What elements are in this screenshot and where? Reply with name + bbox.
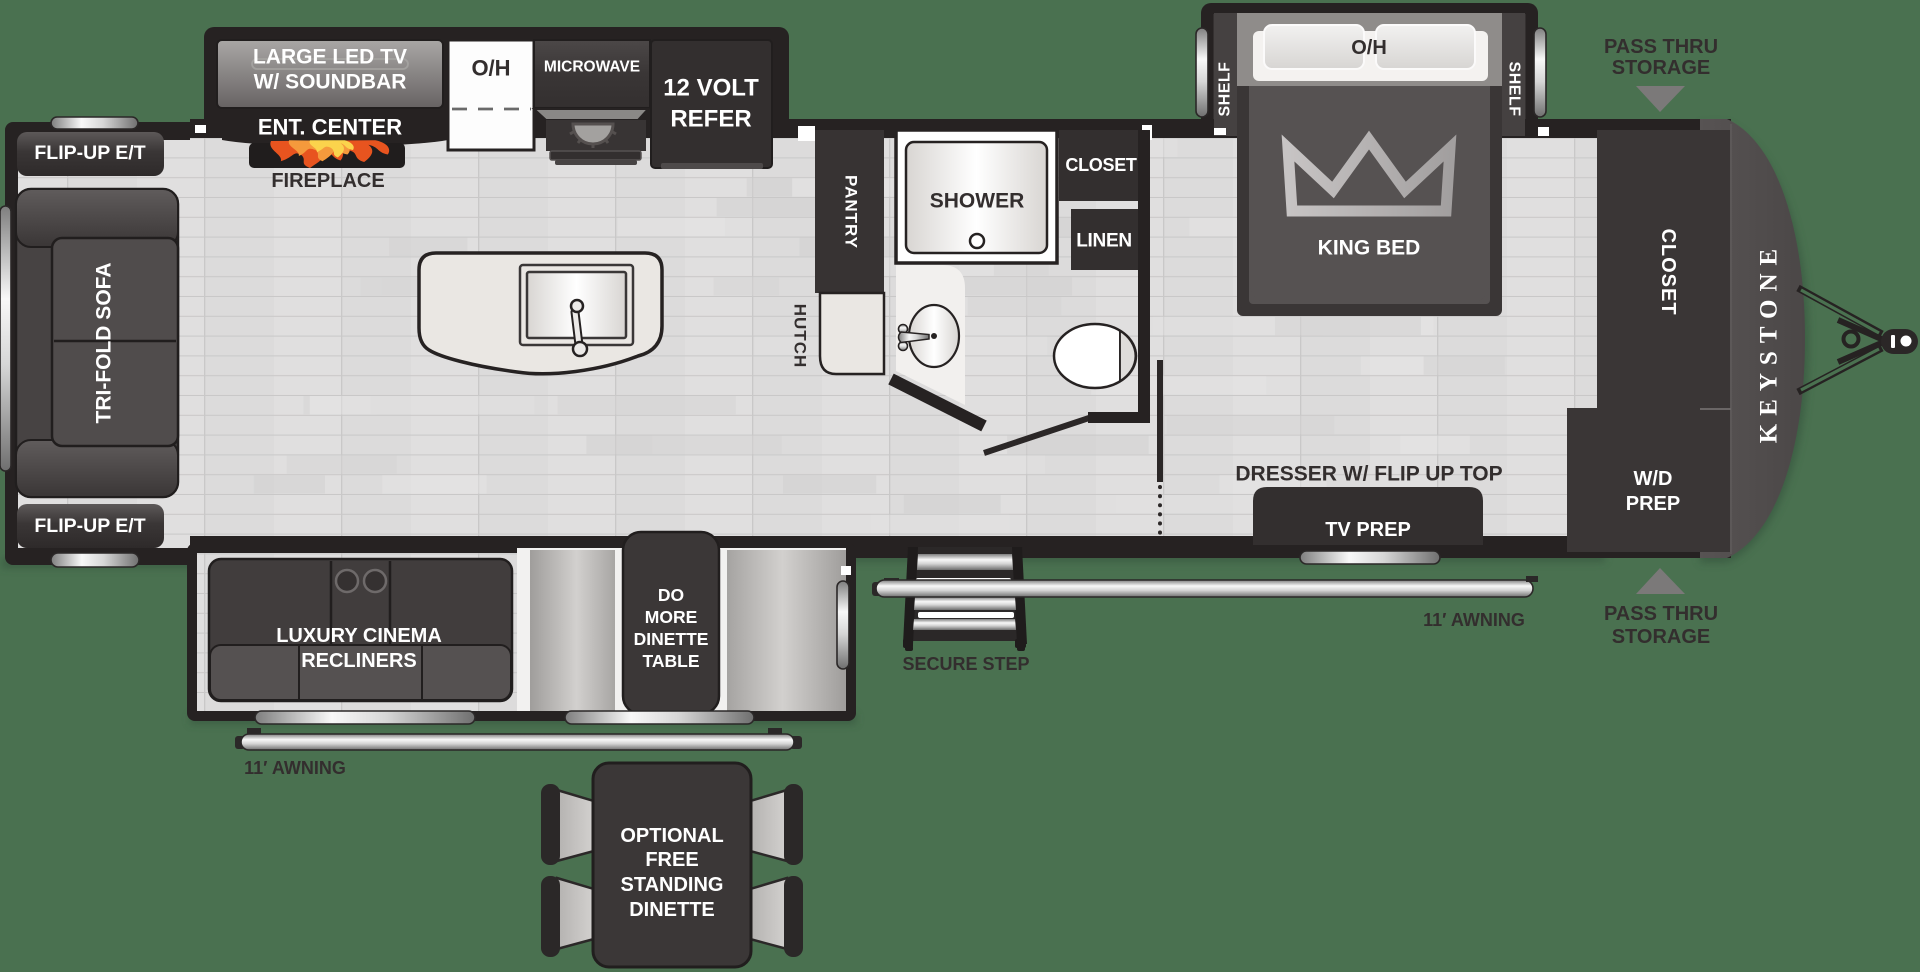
- svg-text:REFER: REFER: [670, 106, 751, 133]
- svg-text:O/H: O/H: [471, 56, 510, 81]
- svg-text:PASS THRU: PASS THRU: [1604, 603, 1718, 625]
- svg-text:FLIP-UP E/T: FLIP-UP E/T: [34, 515, 145, 537]
- svg-text:PANTRY: PANTRY: [842, 175, 861, 249]
- svg-text:FLIP-UP E/T: FLIP-UP E/T: [34, 142, 145, 164]
- svg-text:CLOSET: CLOSET: [1065, 155, 1137, 175]
- svg-text:KING BED: KING BED: [1318, 237, 1421, 260]
- svg-text:MORE: MORE: [645, 607, 698, 627]
- svg-text:W/ SOUNDBAR: W/ SOUNDBAR: [254, 71, 407, 94]
- svg-text:DINETTE: DINETTE: [629, 899, 715, 921]
- svg-text:CLOSET: CLOSET: [1657, 228, 1679, 315]
- svg-text:SHOWER: SHOWER: [930, 190, 1025, 213]
- svg-text:DRESSER W/ FLIP UP TOP: DRESSER W/ FLIP UP TOP: [1235, 463, 1502, 486]
- svg-text:SECURE STEP: SECURE STEP: [902, 654, 1029, 674]
- svg-text:TABLE: TABLE: [642, 651, 699, 671]
- svg-text:PREP: PREP: [1626, 493, 1680, 515]
- svg-text:TV PREP: TV PREP: [1325, 519, 1411, 541]
- svg-text:DINETTE: DINETTE: [634, 629, 709, 649]
- svg-text:MICROWAVE: MICROWAVE: [544, 59, 640, 76]
- svg-text:STORAGE: STORAGE: [1612, 57, 1711, 79]
- svg-text:LARGE LED TV: LARGE LED TV: [253, 46, 407, 69]
- svg-text:LUXURY CINEMA: LUXURY CINEMA: [276, 625, 442, 647]
- svg-text:FREE: FREE: [645, 849, 698, 871]
- svg-text:11′ AWNING: 11′ AWNING: [244, 758, 346, 778]
- svg-text:11′ AWNING: 11′ AWNING: [1423, 610, 1525, 630]
- svg-text:O/H: O/H: [1351, 37, 1387, 59]
- svg-text:12 VOLT: 12 VOLT: [663, 75, 759, 102]
- svg-text:OPTIONAL: OPTIONAL: [620, 825, 723, 847]
- svg-text:FIREPLACE: FIREPLACE: [271, 170, 384, 192]
- svg-text:STANDING: STANDING: [621, 874, 724, 896]
- svg-text:KEYSTONE: KEYSTONE: [1756, 241, 1783, 443]
- svg-text:LINEN: LINEN: [1076, 231, 1132, 252]
- svg-text:PASS THRU: PASS THRU: [1604, 36, 1718, 58]
- svg-text:SHELF: SHELF: [1506, 62, 1523, 117]
- svg-text:STORAGE: STORAGE: [1612, 626, 1711, 648]
- svg-text:SHELF: SHELF: [1217, 62, 1234, 117]
- svg-text:TRI-FOLD SOFA: TRI-FOLD SOFA: [93, 263, 116, 424]
- svg-text:HUTCH: HUTCH: [791, 304, 810, 369]
- svg-text:RECLINERS: RECLINERS: [301, 650, 417, 672]
- svg-text:DO: DO: [658, 585, 684, 605]
- svg-text:W/D: W/D: [1634, 468, 1673, 490]
- svg-text:ENT. CENTER: ENT. CENTER: [258, 115, 402, 140]
